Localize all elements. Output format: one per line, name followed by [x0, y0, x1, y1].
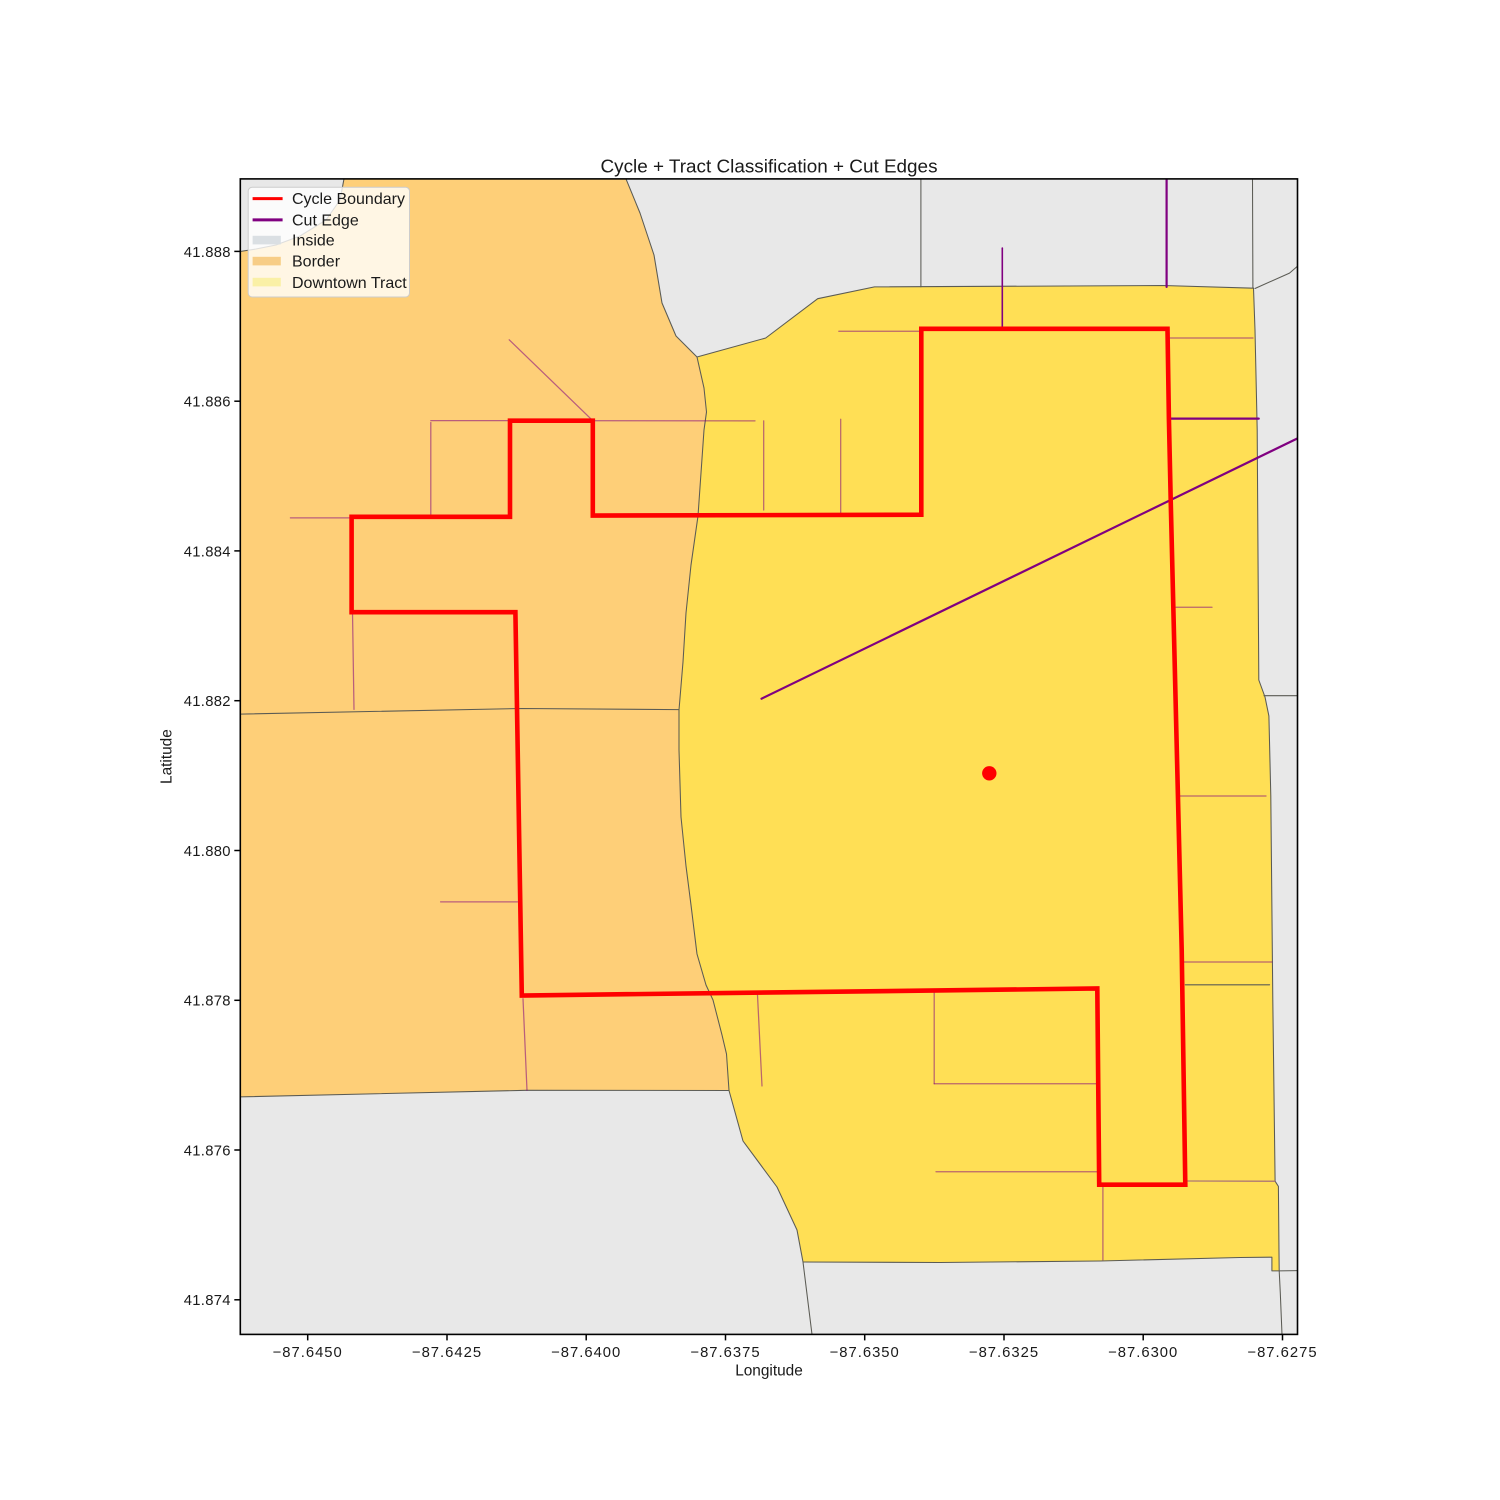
svg-text:Downtown Tract: Downtown Tract [292, 275, 407, 292]
svg-text:Cut Edge: Cut Edge [292, 213, 359, 230]
svg-text:−87.6425: −87.6425 [412, 1345, 482, 1361]
svg-text:41.884: 41.884 [184, 544, 231, 560]
svg-text:41.878: 41.878 [184, 994, 231, 1010]
svg-text:41.874: 41.874 [184, 1293, 231, 1309]
svg-text:Inside: Inside [292, 233, 335, 250]
svg-text:−87.6400: −87.6400 [551, 1345, 621, 1361]
svg-text:41.876: 41.876 [184, 1143, 231, 1159]
svg-text:41.882: 41.882 [184, 694, 231, 710]
svg-text:Cycle + Tract Classification +: Cycle + Tract Classification + Cut Edges [600, 157, 937, 178]
svg-text:41.886: 41.886 [184, 395, 231, 411]
svg-text:−87.6450: −87.6450 [273, 1345, 343, 1361]
svg-text:−87.6350: −87.6350 [830, 1345, 900, 1361]
svg-text:41.880: 41.880 [184, 844, 231, 860]
svg-text:Longitude: Longitude [735, 1363, 803, 1380]
svg-text:−87.6375: −87.6375 [690, 1345, 760, 1361]
svg-text:−87.6275: −87.6275 [1247, 1345, 1317, 1361]
svg-text:Border: Border [292, 254, 341, 271]
svg-text:−87.6325: −87.6325 [969, 1345, 1039, 1361]
svg-text:Latitude: Latitude [159, 729, 176, 784]
svg-text:41.888: 41.888 [184, 245, 231, 261]
svg-text:−87.6300: −87.6300 [1108, 1345, 1178, 1361]
svg-text:Cycle Boundary: Cycle Boundary [292, 191, 405, 208]
